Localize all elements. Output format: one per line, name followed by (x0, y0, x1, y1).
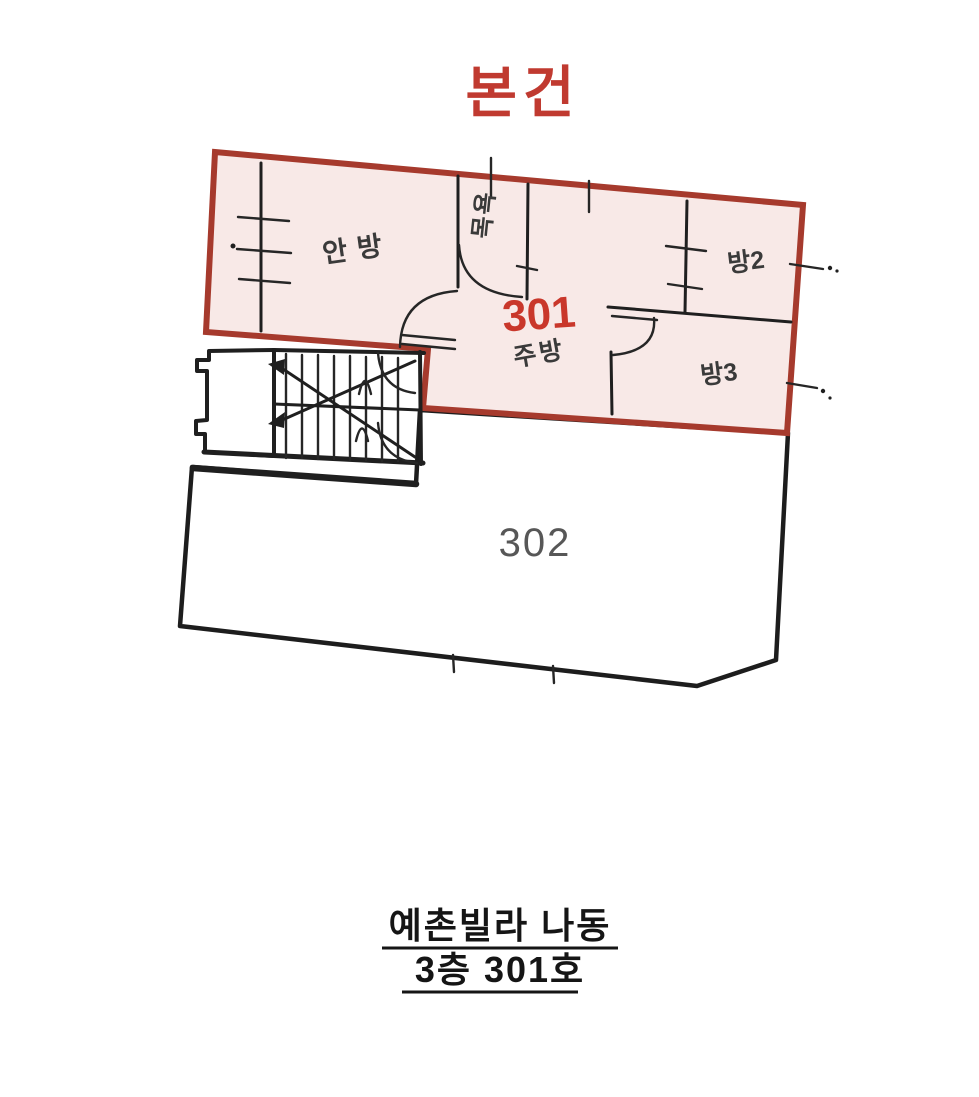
unit-302-number: 302 (499, 521, 572, 565)
caption-building-name: 예촌빌라 나동 (389, 905, 612, 946)
stair-top-wall (274, 350, 424, 353)
stair-arrow-head (268, 412, 285, 428)
floor-plan-page: 본건 (0, 0, 979, 1097)
stair-arrow-head (268, 359, 285, 375)
unit-302-outline (180, 410, 788, 686)
entry-door-arc (378, 353, 415, 393)
survey-dot (231, 244, 236, 249)
stairwell (196, 350, 424, 464)
survey-dot (835, 269, 838, 272)
survey-dot (828, 266, 832, 270)
survey-dot (828, 396, 831, 399)
caption-unit-info: 3층 301호 (415, 949, 585, 990)
unit-301-number: 301 (501, 288, 578, 342)
survey-dot (821, 389, 825, 393)
caption: 예촌빌라 나동 3층 301호 (382, 905, 618, 992)
label-room3: 방3 (699, 358, 739, 390)
dimension-tick (453, 655, 454, 672)
stair-bottom-wall (204, 452, 423, 463)
bath-right-wall (527, 184, 528, 299)
room2-left-wall (685, 201, 687, 312)
label-bath: 목욕 (469, 189, 501, 240)
dimension-tick (553, 666, 554, 683)
unit-302 (180, 410, 788, 686)
stair-vestibule (196, 350, 274, 456)
stair-right-wall (420, 352, 421, 464)
floor-plan-drawing: 본건 (0, 0, 979, 1097)
room3-left-wall (611, 352, 612, 414)
label-room2: 방2 (726, 246, 766, 278)
subject-property-title: 본건 (465, 61, 580, 124)
